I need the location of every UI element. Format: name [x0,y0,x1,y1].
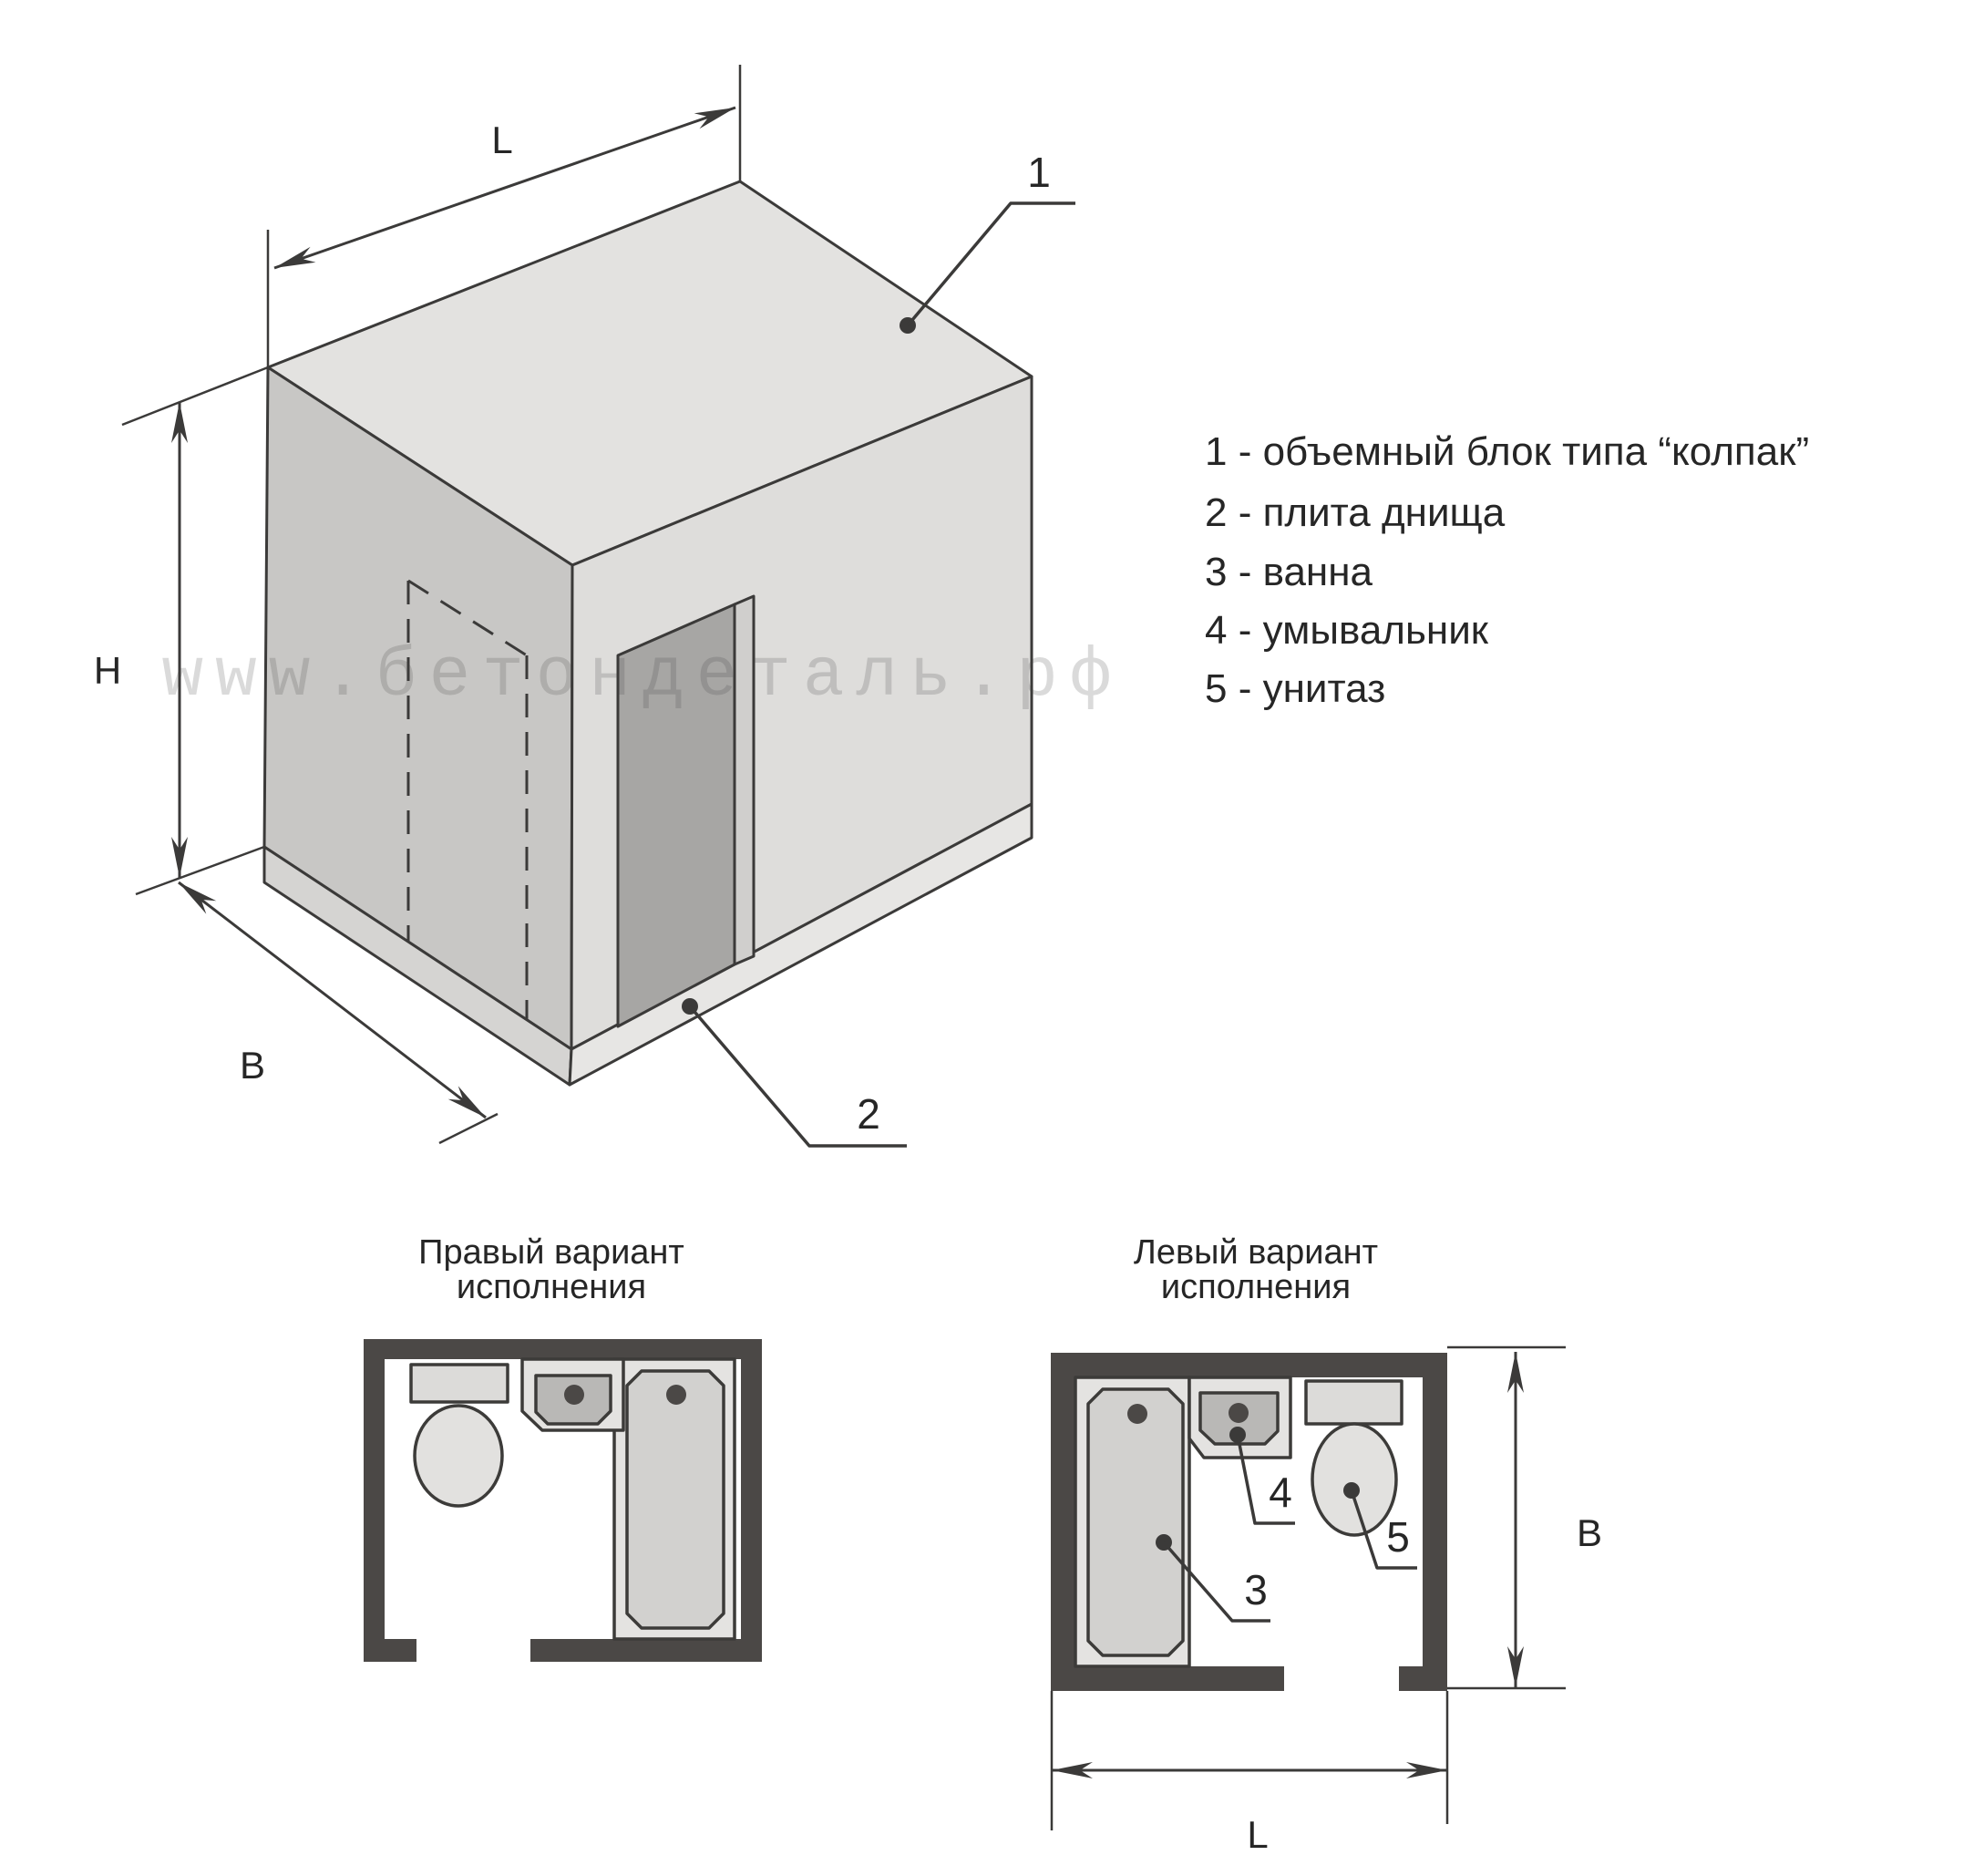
bath-tub-right-plan [627,1371,724,1628]
legend-item-2: 2 - плита днища [1205,490,1506,535]
legend-item-5: 5 - унитаз [1205,666,1385,711]
bath-drain-dot [666,1385,686,1405]
arrowhead [694,108,735,129]
toilet-bowl-right-plan [415,1406,502,1506]
door-gap-right-stub [1399,1666,1447,1691]
arrowhead [448,1086,486,1118]
plan-dim-b-label: B [1577,1511,1602,1554]
door-gap-left-stub [364,1639,416,1662]
toilet-cistern-right-plan [411,1365,508,1402]
plan-right-variant: Правый вариант исполнения [364,1233,762,1662]
toilet-bowl-left-plan [1312,1424,1396,1535]
plan-dimension-l: L [1052,1691,1447,1856]
legend-item-3: 3 - ванна [1205,550,1373,594]
sanitary-cabin-drawing: L H B 1 2 www.бетондеталь.рф [0,0,1974,1876]
legend: 1 - объемный блок типа “колпак” 2 - плит… [1205,429,1809,711]
watermark: www.бетондеталь.рф [162,637,1124,716]
callout-2: 2 [682,998,907,1146]
dim-l-label: L [491,119,512,161]
callout-1-label: 1 [1027,149,1051,196]
dim-b-label: B [240,1044,265,1087]
callout-4-label: 4 [1269,1469,1292,1516]
arrowhead [179,882,216,914]
plan-left-title-line2: исполнения [1161,1268,1351,1306]
plan-dimension-b: B [1447,1347,1602,1688]
legend-item-1: 1 - объемный блок типа “колпак” [1205,429,1809,474]
washbasin-drain-dot [564,1385,584,1405]
toilet-cistern-left-plan [1306,1381,1402,1424]
legend-item-4: 4 - умывальник [1205,608,1489,653]
dim-h-label: H [94,649,121,692]
plan-dim-l-label: L [1247,1813,1268,1856]
technical-drawing-page: L H B 1 2 www.бетондеталь.рф [0,0,1974,1876]
callout-5-label: 5 [1386,1513,1410,1561]
bath-tub-left-plan [1088,1389,1183,1655]
plan-right-title-line2: исполнения [457,1268,646,1306]
isometric-view: L H B 1 2 [94,65,1075,1146]
callout-3-label: 3 [1244,1566,1268,1613]
callout-1: 1 [900,149,1075,334]
arrowhead [274,247,316,268]
callout-2-label: 2 [857,1090,880,1138]
plan-left-variant: Левый вариант исполнения 3 [1051,1233,1602,1856]
bath-drain-dot [1127,1404,1147,1424]
washbasin-drain-dot [1229,1403,1249,1423]
plan-left-title-line1: Левый вариант [1134,1233,1378,1272]
plan-right-title-line1: Правый вариант [418,1233,684,1272]
